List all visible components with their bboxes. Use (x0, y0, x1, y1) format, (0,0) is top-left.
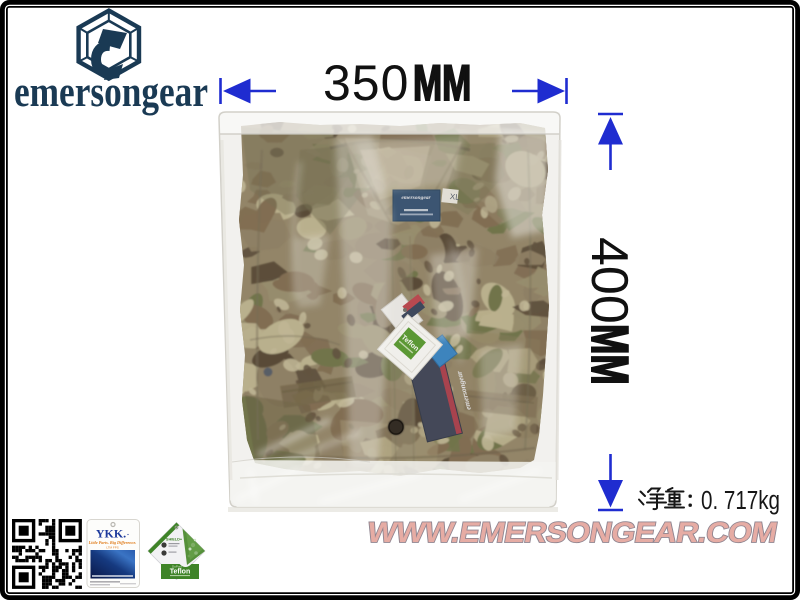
svg-text:SHIELD+: SHIELD+ (166, 538, 183, 542)
svg-text:Little Parts. Big Difference.: Little Parts. Big Difference. (88, 540, 137, 545)
svg-text:Teflon: Teflon (170, 569, 190, 576)
svg-text:emersongear: emersongear (14, 69, 208, 116)
svg-text:MM: MM (413, 56, 471, 112)
svg-text:0. 717kg: 0. 717kg (701, 487, 780, 515)
svg-text:WWW.EMERSONGEAR.COM: WWW.EMERSONGEAR.COM (365, 517, 780, 549)
svg-text:MM: MM (580, 324, 639, 385)
svg-text:350: 350 (323, 55, 409, 111)
svg-text:YKK.: YKK. (96, 527, 126, 541)
svg-text:LTM FPS: LTM FPS (106, 546, 118, 550)
svg-text:400: 400 (580, 237, 638, 324)
svg-text:DuPont: DuPont (172, 565, 182, 569)
